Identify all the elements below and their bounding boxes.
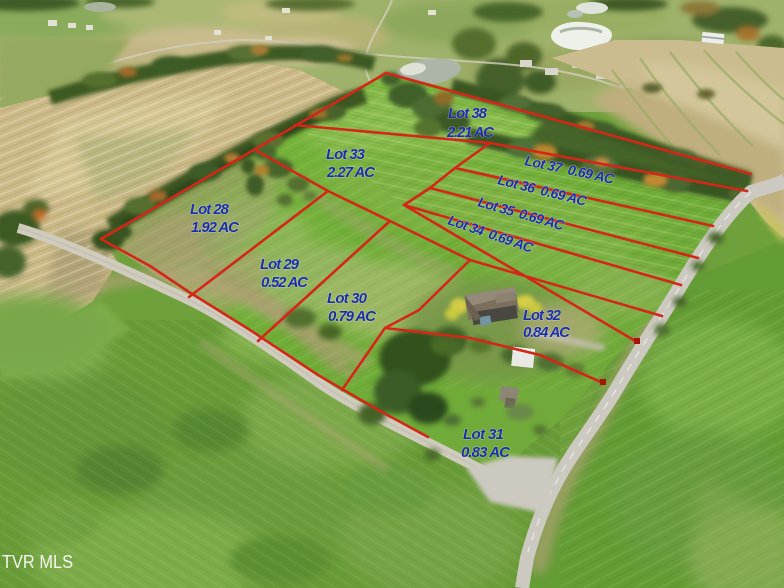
svg-text:2.21 AC: 2.21 AC <box>446 124 495 141</box>
svg-text:0.83 AC: 0.83 AC <box>461 444 511 461</box>
svg-text:Lot 31: Lot 31 <box>463 426 504 443</box>
svg-text:1.92 AC: 1.92 AC <box>191 219 240 236</box>
svg-text:Lot 33: Lot 33 <box>326 146 366 163</box>
svg-text:Lot 29: Lot 29 <box>260 256 300 273</box>
svg-text:0.84 AC: 0.84 AC <box>523 324 571 341</box>
svg-text:0.52 AC: 0.52 AC <box>261 274 309 291</box>
svg-text:2.27 AC: 2.27 AC <box>326 164 376 181</box>
svg-text:TVR MLS: TVR MLS <box>2 552 73 572</box>
svg-text:Lot 30: Lot 30 <box>327 290 368 307</box>
svg-text:Lot 32: Lot 32 <box>523 307 562 324</box>
svg-text:Lot 28: Lot 28 <box>190 201 230 218</box>
svg-text:Lot 38: Lot 38 <box>448 105 488 122</box>
svg-text:0.79 AC: 0.79 AC <box>328 308 377 325</box>
